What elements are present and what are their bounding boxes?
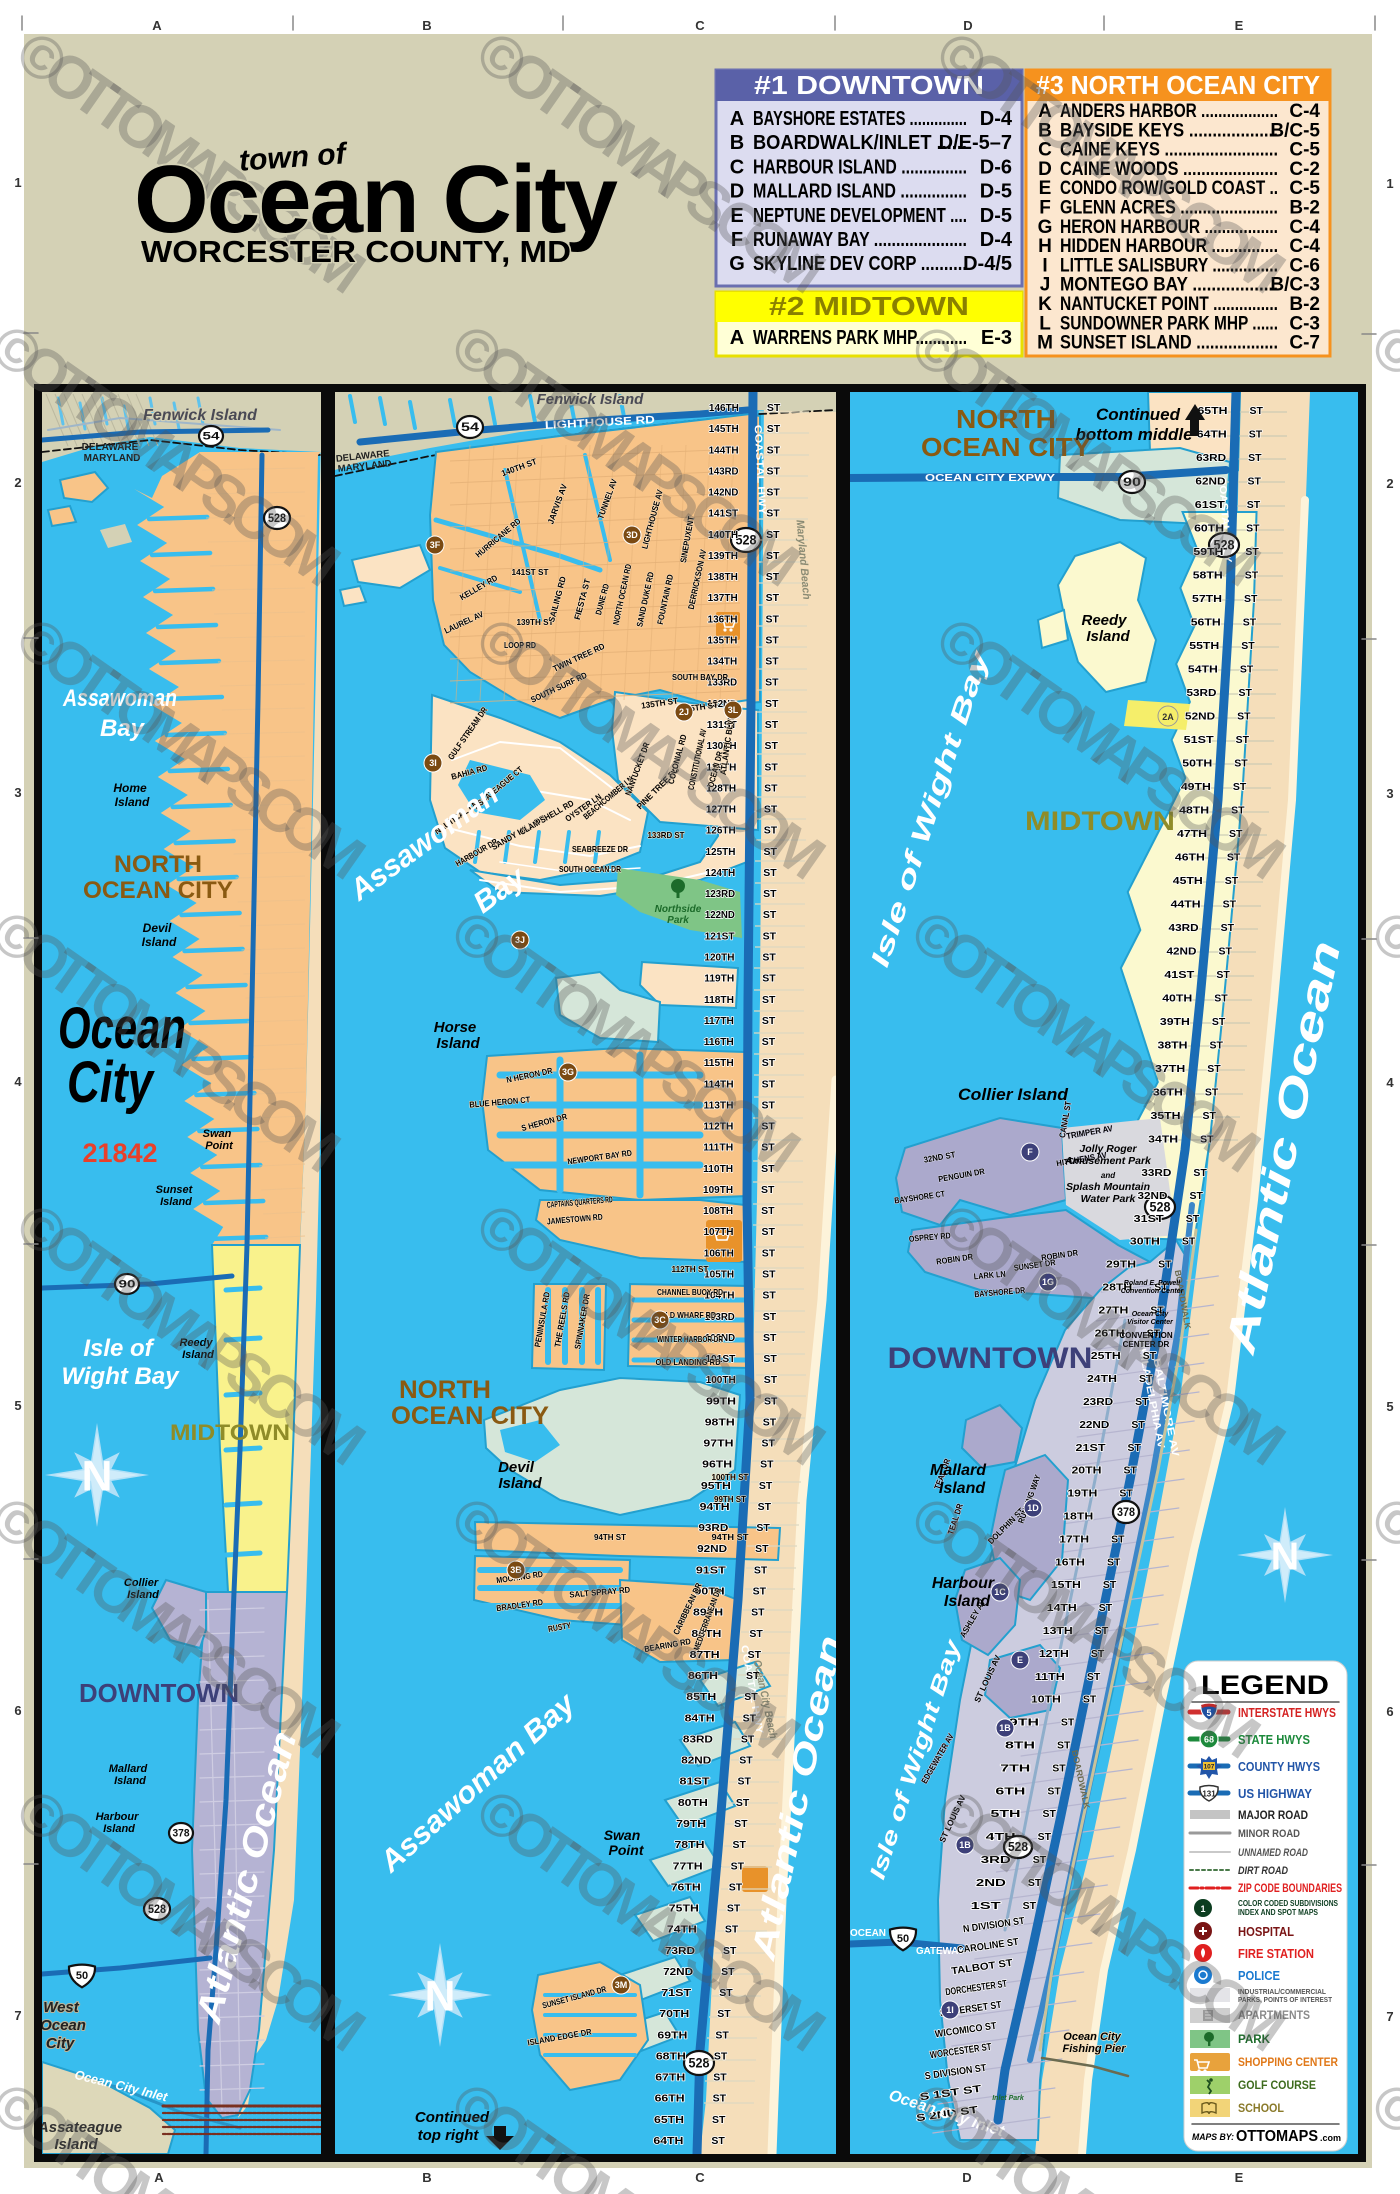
svg-text:56TH: 56TH xyxy=(1191,617,1221,629)
svg-text:Continued: Continued xyxy=(1096,405,1181,424)
svg-text:C-4: C-4 xyxy=(1289,236,1320,257)
svg-text:N: N xyxy=(82,1453,113,1501)
svg-text:ST: ST xyxy=(1248,452,1262,464)
svg-text:68TH: 68TH xyxy=(656,2050,686,2062)
svg-text:ST: ST xyxy=(763,930,777,942)
svg-text:94TH ST: 94TH ST xyxy=(594,1532,627,1542)
svg-text:ST: ST xyxy=(1119,1488,1133,1500)
svg-text:ST: ST xyxy=(765,656,779,668)
svg-text:5: 5 xyxy=(1386,1399,1393,1414)
svg-text:Island: Island xyxy=(160,1196,192,1208)
svg-text:ST: ST xyxy=(739,1755,753,1767)
svg-text:64TH: 64TH xyxy=(1197,429,1227,441)
svg-text:COLOR CODED SUBDIVISIONS: COLOR CODED SUBDIVISIONS xyxy=(1238,1899,1339,1908)
svg-text:#3 NORTH OCEAN CITY: #3 NORTH OCEAN CITY xyxy=(1036,70,1320,100)
svg-text:70TH: 70TH xyxy=(659,2008,689,2020)
svg-text:ST: ST xyxy=(761,1184,775,1196)
svg-text:SOUTH BAY DR: SOUTH BAY DR xyxy=(672,672,728,682)
svg-text:ST: ST xyxy=(1221,922,1235,934)
svg-text:ST: ST xyxy=(762,973,776,985)
svg-text:50: 50 xyxy=(897,1933,909,1945)
svg-text:ST: ST xyxy=(1128,1442,1142,1454)
svg-text:146TH: 146TH xyxy=(709,402,739,414)
svg-text:44TH: 44TH xyxy=(1171,899,1201,911)
svg-text:C-4: C-4 xyxy=(1289,101,1320,122)
svg-text:ST: ST xyxy=(1083,1694,1097,1706)
svg-text:ST: ST xyxy=(762,1078,776,1090)
svg-text:92ND: 92ND xyxy=(697,1543,727,1555)
svg-text:31ST: 31ST xyxy=(1134,1213,1165,1225)
svg-text:NORTH: NORTH xyxy=(399,1376,491,1404)
svg-text:DOWNTOWN: DOWNTOWN xyxy=(888,1342,1093,1375)
svg-text:B-2: B-2 xyxy=(1289,198,1320,219)
svg-text:ST: ST xyxy=(759,1480,773,1492)
svg-text:106TH: 106TH xyxy=(704,1247,734,1259)
svg-text:ST: ST xyxy=(1193,1167,1207,1179)
svg-text:7: 7 xyxy=(14,2008,21,2023)
svg-text:COUNTY HWYS: COUNTY HWYS xyxy=(1238,1759,1320,1774)
svg-text:46TH: 46TH xyxy=(1175,852,1205,864)
svg-text:116TH: 116TH xyxy=(704,1036,734,1048)
svg-text:Ocean City: Ocean City xyxy=(1063,2031,1121,2043)
svg-text:ST: ST xyxy=(767,444,781,456)
svg-text:107TH: 107TH xyxy=(703,1226,733,1238)
svg-text:C: C xyxy=(730,156,744,178)
svg-text:141ST ST: 141ST ST xyxy=(512,567,550,577)
svg-text:ST: ST xyxy=(1223,899,1237,911)
svg-text:107: 107 xyxy=(1204,1764,1215,1771)
svg-text:69TH: 69TH xyxy=(657,2029,687,2041)
svg-text:ST: ST xyxy=(713,2072,727,2084)
svg-text:20TH: 20TH xyxy=(1071,1465,1101,1477)
svg-text:Ocean: Ocean xyxy=(40,2017,86,2034)
svg-text:ST: ST xyxy=(763,1353,777,1365)
svg-text:ST: ST xyxy=(712,2114,726,2126)
svg-text:B/C-5: B/C-5 xyxy=(1270,120,1320,141)
svg-text:ST: ST xyxy=(1247,499,1261,511)
svg-text:21ST: 21ST xyxy=(1076,1442,1107,1454)
svg-text:ST: ST xyxy=(1249,429,1263,441)
svg-text:80TH: 80TH xyxy=(678,1797,708,1809)
svg-text:42ND: 42ND xyxy=(1166,946,1196,958)
svg-text:D-5: D-5 xyxy=(980,205,1012,227)
svg-text:F: F xyxy=(1027,1147,1033,1157)
svg-text:51ST: 51ST xyxy=(1184,734,1215,746)
svg-text:Devil: Devil xyxy=(498,1459,535,1476)
svg-text:L: L xyxy=(1039,313,1051,334)
svg-text:135TH: 135TH xyxy=(707,634,737,646)
svg-text:ST: ST xyxy=(1207,1063,1221,1075)
svg-text:MINOR ROAD: MINOR ROAD xyxy=(1238,1828,1300,1840)
svg-text:ST: ST xyxy=(766,613,780,625)
svg-text:122ND: 122ND xyxy=(705,909,735,921)
svg-text:124TH: 124TH xyxy=(705,867,735,879)
svg-text:45TH: 45TH xyxy=(1173,875,1203,887)
svg-text:97TH: 97TH xyxy=(703,1438,733,1450)
svg-text:MAJOR ROAD: MAJOR ROAD xyxy=(1238,1808,1308,1822)
svg-text:Reedy: Reedy xyxy=(1081,612,1127,629)
svg-text:ST: ST xyxy=(1111,1533,1125,1545)
svg-text:B: B xyxy=(422,2170,431,2185)
svg-text:Point: Point xyxy=(205,1140,234,1152)
svg-text:GOLF COURSE: GOLF COURSE xyxy=(1238,2078,1316,2092)
svg-text:ST: ST xyxy=(762,1036,776,1048)
svg-text:ST: ST xyxy=(1210,1040,1224,1052)
svg-text:131: 131 xyxy=(1202,1790,1216,1799)
svg-text:Swan: Swan xyxy=(203,1128,232,1140)
svg-text:94TH ST: 94TH ST xyxy=(712,1532,750,1542)
svg-text:ST: ST xyxy=(1103,1579,1117,1591)
svg-text:City: City xyxy=(46,2035,75,2052)
svg-text:21842: 21842 xyxy=(82,1138,157,1168)
svg-text:OCEAN CITY: OCEAN CITY xyxy=(83,877,233,904)
svg-text:Island: Island xyxy=(1086,628,1130,645)
svg-text:ST: ST xyxy=(1241,640,1255,652)
svg-text:3F: 3F xyxy=(430,540,441,550)
svg-text:Island: Island xyxy=(436,1035,480,1052)
svg-text:6: 6 xyxy=(14,1703,21,1718)
svg-text:D-6: D-6 xyxy=(980,156,1012,178)
svg-text:ST: ST xyxy=(765,740,779,752)
svg-text:C: C xyxy=(695,2170,705,2185)
svg-text:19TH: 19TH xyxy=(1067,1488,1097,1500)
svg-text:50: 50 xyxy=(76,1970,88,1982)
svg-text:57TH: 57TH xyxy=(1192,593,1222,605)
svg-text:B/C-3: B/C-3 xyxy=(1270,275,1320,296)
svg-text:ST: ST xyxy=(1237,711,1251,723)
svg-text:Horse: Horse xyxy=(434,1019,477,1036)
svg-text:ST: ST xyxy=(767,402,781,414)
svg-text:SUNDOWNER PARK MHP ......: SUNDOWNER PARK MHP ...... xyxy=(1060,313,1278,334)
svg-text:ST: ST xyxy=(1186,1213,1200,1225)
svg-text:D/E-5–7: D/E-5–7 xyxy=(939,132,1012,154)
svg-text:3G: 3G xyxy=(562,1067,574,1077)
svg-text:FIRE STATION: FIRE STATION xyxy=(1238,1946,1314,1961)
svg-text:Convention Center: Convention Center xyxy=(1121,1288,1185,1295)
svg-text:ST: ST xyxy=(1216,969,1230,981)
svg-text:ST: ST xyxy=(767,423,781,435)
svg-text:3: 3 xyxy=(1386,786,1393,801)
svg-text:7TH: 7TH xyxy=(1000,1762,1030,1774)
svg-text:Island: Island xyxy=(142,935,177,949)
svg-text:C-5: C-5 xyxy=(1289,140,1320,161)
svg-text:52ND: 52ND xyxy=(1185,711,1215,723)
svg-text:112TH ST: 112TH ST xyxy=(672,1264,710,1274)
svg-text:ST: ST xyxy=(1107,1556,1121,1568)
svg-text:Fishing Pier: Fishing Pier xyxy=(1063,2043,1127,2055)
svg-text:81ST: 81ST xyxy=(680,1776,711,1788)
svg-text:378: 378 xyxy=(1117,1505,1135,1519)
svg-text:D-4: D-4 xyxy=(980,229,1013,251)
svg-text:10TH: 10TH xyxy=(1031,1694,1061,1706)
svg-text:ST: ST xyxy=(763,1311,777,1323)
svg-text:144TH: 144TH xyxy=(709,444,739,456)
svg-text:J: J xyxy=(1040,275,1051,296)
svg-text:Swan: Swan xyxy=(604,1827,641,1843)
svg-text:ST: ST xyxy=(755,1543,769,1555)
svg-text:ST: ST xyxy=(760,1459,774,1471)
svg-text:117TH: 117TH xyxy=(704,1015,734,1027)
svg-text:ST: ST xyxy=(1234,758,1248,770)
svg-text:OCEAN CITY EXPWY: OCEAN CITY EXPWY xyxy=(925,472,1055,484)
svg-text:Amusement Park: Amusement Park xyxy=(1064,1155,1152,1167)
svg-text:B: B xyxy=(422,18,431,33)
svg-text:54TH: 54TH xyxy=(1188,664,1218,676)
svg-text:Northside: Northside xyxy=(655,904,702,915)
svg-text:ST: ST xyxy=(734,1818,748,1830)
svg-text:US HIGHWAY: US HIGHWAY xyxy=(1238,1786,1312,1801)
svg-text:145TH: 145TH xyxy=(709,423,739,435)
svg-text:2A: 2A xyxy=(1162,712,1174,722)
svg-text:ST: ST xyxy=(762,1015,776,1027)
svg-text:ST: ST xyxy=(715,2029,729,2041)
svg-text:1: 1 xyxy=(1200,1904,1205,1914)
svg-text:2: 2 xyxy=(1386,476,1393,491)
svg-text:ST: ST xyxy=(765,719,779,731)
svg-text:133RD ST: 133RD ST xyxy=(648,830,686,840)
svg-text:D-5: D-5 xyxy=(980,181,1012,203)
svg-text:ST: ST xyxy=(766,592,780,604)
svg-text:ST: ST xyxy=(1057,1740,1071,1752)
svg-text:ST: ST xyxy=(762,1269,776,1281)
svg-text:OTTOMAPS: OTTOMAPS xyxy=(1236,2128,1318,2145)
svg-text:6TH: 6TH xyxy=(995,1785,1025,1797)
svg-text:3M: 3M xyxy=(615,1980,628,1990)
svg-text:ST: ST xyxy=(714,2050,728,2062)
svg-text:Island: Island xyxy=(498,1475,542,1492)
svg-text:CHANNEL BUOY RD: CHANNEL BUOY RD xyxy=(657,1287,723,1297)
svg-text:62ND: 62ND xyxy=(1195,476,1225,488)
svg-text:I: I xyxy=(1042,255,1047,276)
svg-text:ST: ST xyxy=(762,1057,776,1069)
svg-text:ST: ST xyxy=(1047,1785,1061,1797)
svg-text:3: 3 xyxy=(14,785,21,800)
svg-text:ST: ST xyxy=(766,487,780,499)
svg-text:ST: ST xyxy=(738,1776,752,1788)
svg-text:ST: ST xyxy=(1244,593,1258,605)
svg-text:INDEX AND SPOT MAPS: INDEX AND SPOT MAPS xyxy=(1238,1908,1319,1917)
svg-text:HARBOUR ISLAND ...............: HARBOUR ISLAND ............... xyxy=(753,156,967,178)
svg-text:4: 4 xyxy=(1386,1075,1394,1090)
svg-text:63RD: 63RD xyxy=(1196,452,1226,464)
svg-text:54: 54 xyxy=(461,420,479,434)
svg-text:SEABREEZE DR: SEABREEZE DR xyxy=(572,844,628,854)
svg-text:6: 6 xyxy=(1386,1704,1393,1719)
svg-text:ST: ST xyxy=(1043,1808,1057,1820)
svg-text:123RD: 123RD xyxy=(705,888,735,900)
svg-text:OCEAN CITY: OCEAN CITY xyxy=(391,1402,549,1430)
svg-text:C-7: C-7 xyxy=(1289,333,1320,354)
svg-text:ST: ST xyxy=(765,677,779,689)
svg-text:B-2: B-2 xyxy=(1289,294,1320,315)
svg-text:C-3: C-3 xyxy=(1289,313,1320,334)
svg-text:105TH: 105TH xyxy=(704,1269,734,1281)
svg-text:.com: .com xyxy=(1320,2133,1341,2143)
svg-text:ST: ST xyxy=(754,1564,768,1576)
svg-text:Splash Mountain: Splash Mountain xyxy=(1066,1181,1150,1193)
svg-text:ST: ST xyxy=(1243,617,1257,629)
svg-text:ST: ST xyxy=(713,2093,727,2105)
svg-text:109TH: 109TH xyxy=(703,1184,733,1196)
svg-text:40TH: 40TH xyxy=(1162,993,1192,1005)
svg-text:136TH: 136TH xyxy=(708,613,738,625)
svg-text:ST: ST xyxy=(711,2135,725,2147)
svg-text:ST: ST xyxy=(762,994,776,1006)
svg-text:ST: ST xyxy=(762,951,776,963)
svg-text:ST: ST xyxy=(765,698,779,710)
svg-text:528: 528 xyxy=(689,2055,710,2071)
svg-text:Island: Island xyxy=(115,795,150,809)
svg-text:7: 7 xyxy=(1386,2009,1393,2024)
svg-text:West: West xyxy=(43,1999,80,2016)
svg-text:C-2: C-2 xyxy=(1289,159,1320,180)
svg-text:ST: ST xyxy=(766,465,780,477)
svg-text:ZIP CODE BOUNDARIES: ZIP CODE BOUNDARIES xyxy=(1238,1881,1342,1895)
svg-text:C-6: C-6 xyxy=(1289,255,1320,276)
svg-text:77TH: 77TH xyxy=(673,1860,703,1872)
svg-text:100TH ST: 100TH ST xyxy=(712,1472,750,1482)
svg-text:3D: 3D xyxy=(626,530,638,540)
svg-text:378: 378 xyxy=(173,1828,190,1840)
svg-text:ST: ST xyxy=(732,1839,746,1851)
svg-text:and: and xyxy=(1101,1171,1116,1180)
svg-text:DIRT ROAD: DIRT ROAD xyxy=(1238,1865,1288,1877)
svg-text:D: D xyxy=(1038,159,1052,180)
svg-text:1I: 1I xyxy=(946,2005,954,2015)
svg-text:78TH: 78TH xyxy=(674,1839,704,1851)
svg-text:17TH: 17TH xyxy=(1059,1533,1089,1545)
svg-text:A: A xyxy=(152,18,162,33)
svg-text:5: 5 xyxy=(14,1398,21,1413)
svg-text:ST: ST xyxy=(1190,1190,1204,1202)
svg-text:43RD: 43RD xyxy=(1169,922,1199,934)
svg-text:16TH: 16TH xyxy=(1055,1556,1085,1568)
svg-text:134TH: 134TH xyxy=(707,656,737,668)
svg-text:ST: ST xyxy=(1214,993,1228,1005)
svg-text:Jolly Roger: Jolly Roger xyxy=(1079,1143,1137,1155)
svg-text:8TH: 8TH xyxy=(1005,1740,1035,1752)
svg-text:ST: ST xyxy=(763,909,777,921)
svg-text:137TH: 137TH xyxy=(708,592,738,604)
svg-text:22ND: 22ND xyxy=(1079,1419,1109,1431)
svg-text:39TH: 39TH xyxy=(1160,1016,1190,1028)
svg-text:K: K xyxy=(1038,294,1052,315)
svg-text:53RD: 53RD xyxy=(1186,687,1216,699)
svg-text:E: E xyxy=(1017,1655,1023,1665)
svg-text:BAYSHORE ESTATES .............: BAYSHORE ESTATES .............. xyxy=(753,108,967,130)
svg-text:30TH: 30TH xyxy=(1130,1236,1160,1248)
svg-text:B: B xyxy=(730,132,744,154)
svg-text:99TH ST: 99TH ST xyxy=(714,1494,747,1504)
svg-text:Mallard: Mallard xyxy=(930,1462,987,1479)
svg-text:82ND: 82ND xyxy=(681,1755,711,1767)
svg-text:Sunset: Sunset xyxy=(156,1184,194,1196)
svg-text:NORTH: NORTH xyxy=(114,851,202,878)
svg-text:MAPS BY:: MAPS BY: xyxy=(1192,2132,1234,2142)
svg-text:23RD: 23RD xyxy=(1083,1396,1113,1408)
svg-text:C: C xyxy=(695,18,705,33)
svg-text:SOUTH OCEAN DR: SOUTH OCEAN DR xyxy=(559,864,621,874)
svg-text:1B: 1B xyxy=(999,1723,1011,1733)
svg-text:125TH: 125TH xyxy=(705,846,735,858)
svg-text:Water Park: Water Park xyxy=(1081,1193,1137,1205)
svg-text:96TH: 96TH xyxy=(702,1459,732,1471)
svg-text:Park: Park xyxy=(667,915,689,926)
svg-text:1: 1 xyxy=(14,175,21,190)
svg-text:WORCESTER COUNTY, MD: WORCESTER COUNTY, MD xyxy=(141,234,571,269)
svg-text:ST: ST xyxy=(1238,687,1252,699)
svg-text:SUNSET ISLAND ................: SUNSET ISLAND .................. xyxy=(1060,333,1278,354)
svg-text:Inlet Park: Inlet Park xyxy=(992,2095,1025,2102)
svg-text:ST: ST xyxy=(761,1205,775,1217)
svg-text:66TH: 66TH xyxy=(655,2093,685,2105)
svg-text:ST: ST xyxy=(764,761,778,773)
svg-text:67TH: 67TH xyxy=(655,2072,685,2084)
svg-text:38TH: 38TH xyxy=(1158,1040,1188,1052)
svg-text:ST: ST xyxy=(1212,1016,1226,1028)
svg-text:ST: ST xyxy=(1218,946,1232,958)
svg-text:120TH: 120TH xyxy=(704,951,734,963)
svg-text:118TH: 118TH xyxy=(704,994,734,1006)
svg-text:79TH: 79TH xyxy=(676,1818,706,1830)
svg-text:M: M xyxy=(1037,333,1053,354)
svg-text:2: 2 xyxy=(14,475,21,490)
svg-text:18TH: 18TH xyxy=(1063,1511,1093,1523)
svg-text:71ST: 71ST xyxy=(661,1987,692,1999)
svg-text:ST: ST xyxy=(1182,1236,1196,1248)
svg-text:ST: ST xyxy=(736,1797,750,1809)
svg-text:ST: ST xyxy=(1123,1465,1137,1477)
svg-text:SHOPPING CENTER: SHOPPING CENTER xyxy=(1238,2055,1338,2069)
svg-text:F: F xyxy=(1039,198,1051,219)
svg-text:ST: ST xyxy=(762,1290,776,1302)
svg-text:ST: ST xyxy=(729,1881,743,1893)
svg-text:UNNAMED ROAD: UNNAMED ROAD xyxy=(1238,1847,1308,1859)
svg-text:108TH: 108TH xyxy=(703,1205,733,1217)
svg-text:ST: ST xyxy=(763,1332,777,1344)
svg-text:1ST: 1ST xyxy=(971,1900,1002,1912)
svg-text:2J: 2J xyxy=(679,707,689,717)
svg-text:D-4/5: D-4/5 xyxy=(963,253,1012,275)
svg-text:ST: ST xyxy=(1131,1419,1145,1431)
svg-text:H: H xyxy=(1038,236,1052,257)
svg-text:C-5: C-5 xyxy=(1289,178,1320,199)
svg-text:A: A xyxy=(730,108,744,130)
svg-text:ST: ST xyxy=(1158,1259,1172,1271)
svg-text:N: N xyxy=(425,1973,456,2021)
svg-text:11TH: 11TH xyxy=(1035,1671,1065,1683)
svg-text:G: G xyxy=(1038,217,1053,238)
svg-text:ST: ST xyxy=(1233,781,1247,793)
svg-text:STATE HWYS: STATE HWYS xyxy=(1238,1732,1310,1747)
svg-text:Devil: Devil xyxy=(143,921,172,935)
svg-text:C-4: C-4 xyxy=(1289,217,1320,238)
svg-text:Home: Home xyxy=(113,781,147,795)
svg-text:83RD: 83RD xyxy=(683,1733,713,1745)
svg-text:SCHOOL: SCHOOL xyxy=(1238,2101,1284,2115)
svg-text:119TH: 119TH xyxy=(704,973,734,985)
svg-text:3I: 3I xyxy=(429,758,437,768)
svg-text:1D: 1D xyxy=(1027,1503,1039,1513)
svg-text:41ST: 41ST xyxy=(1164,969,1195,981)
svg-text:ST: ST xyxy=(1052,1762,1066,1774)
svg-text:ST: ST xyxy=(749,1628,763,1640)
svg-text:E: E xyxy=(1235,18,1244,33)
svg-text:64TH: 64TH xyxy=(653,2135,683,2147)
svg-text:Wight Bay: Wight Bay xyxy=(61,1363,180,1390)
svg-text:ST: ST xyxy=(1249,405,1263,417)
svg-text:ST: ST xyxy=(1240,664,1254,676)
